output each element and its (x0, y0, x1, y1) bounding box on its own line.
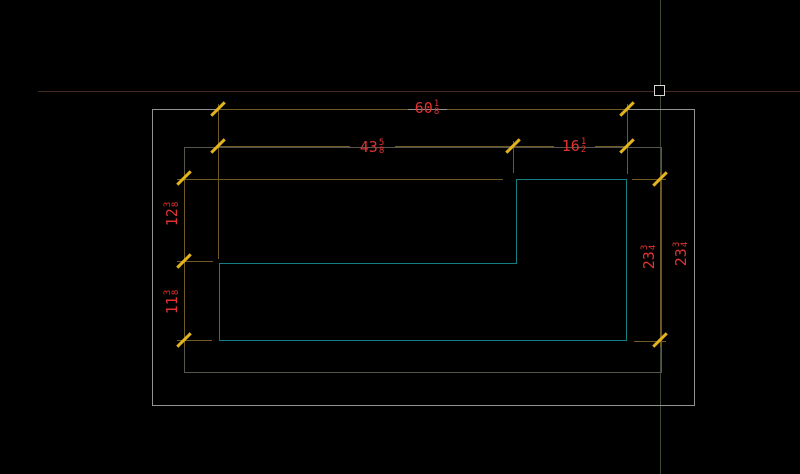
pickbox-cursor-icon (654, 85, 665, 96)
extension-line-right[interactable] (627, 104, 628, 174)
dim-line-width-total-left[interactable] (218, 109, 408, 110)
dim-text-height-right-duplicate[interactable]: 23 3 4 (673, 242, 689, 266)
dim-fraction: 5 8 (379, 139, 384, 155)
dim-text-height-upper-left[interactable]: 12 3 8 (164, 202, 180, 226)
part-outline-left-edge[interactable] (219, 263, 220, 341)
dim-text-width-total[interactable]: 60 1 8 (415, 100, 439, 116)
dim-value: 11 (165, 296, 179, 314)
dim-value: 12 (165, 208, 179, 226)
dim-text-width-right[interactable]: 16 1 2 (562, 138, 586, 154)
dim-line-width-left-b[interactable] (395, 146, 513, 147)
extension-line-top-step[interactable] (177, 179, 503, 180)
dim-value: 60 (415, 101, 433, 115)
part-outline-step-vertical-edge[interactable] (516, 179, 517, 264)
dim-line-right-vertical[interactable] (660, 172, 661, 347)
dim-value: 23 (674, 248, 688, 266)
dim-fraction: 3 4 (641, 245, 657, 250)
dim-fraction: 3 4 (673, 242, 689, 247)
dim-fraction: 3 8 (164, 290, 180, 295)
dim-value: 16 (562, 139, 580, 153)
drawing-canvas[interactable]: 60 1 8 43 5 8 16 1 2 12 3 8 11 3 8 (0, 0, 800, 474)
dim-value: 23 (642, 251, 656, 269)
dim-value: 43 (360, 140, 378, 154)
dim-line-width-left-a[interactable] (218, 146, 350, 147)
dim-fraction: 1 8 (434, 100, 439, 116)
dim-line-width-right-a[interactable] (513, 146, 554, 147)
dim-text-height-lower-left[interactable]: 11 3 8 (164, 290, 180, 314)
dim-text-height-right[interactable]: 23 3 4 (641, 245, 657, 269)
dim-line-width-total-right[interactable] (447, 109, 628, 110)
part-outline-right-edge[interactable] (626, 179, 627, 341)
dim-fraction: 3 8 (164, 202, 180, 207)
dim-text-width-left[interactable]: 43 5 8 (360, 139, 384, 155)
dim-fraction: 1 2 (581, 138, 586, 154)
part-outline-top-edge[interactable] (516, 179, 627, 180)
extension-line-bottom-right[interactable] (634, 341, 666, 342)
extension-line-left[interactable] (218, 104, 219, 259)
part-outline-bottom-edge[interactable] (219, 340, 627, 341)
crosshair-horizontal-line (38, 91, 800, 92)
part-outline-step-horizontal-edge[interactable] (219, 263, 517, 264)
